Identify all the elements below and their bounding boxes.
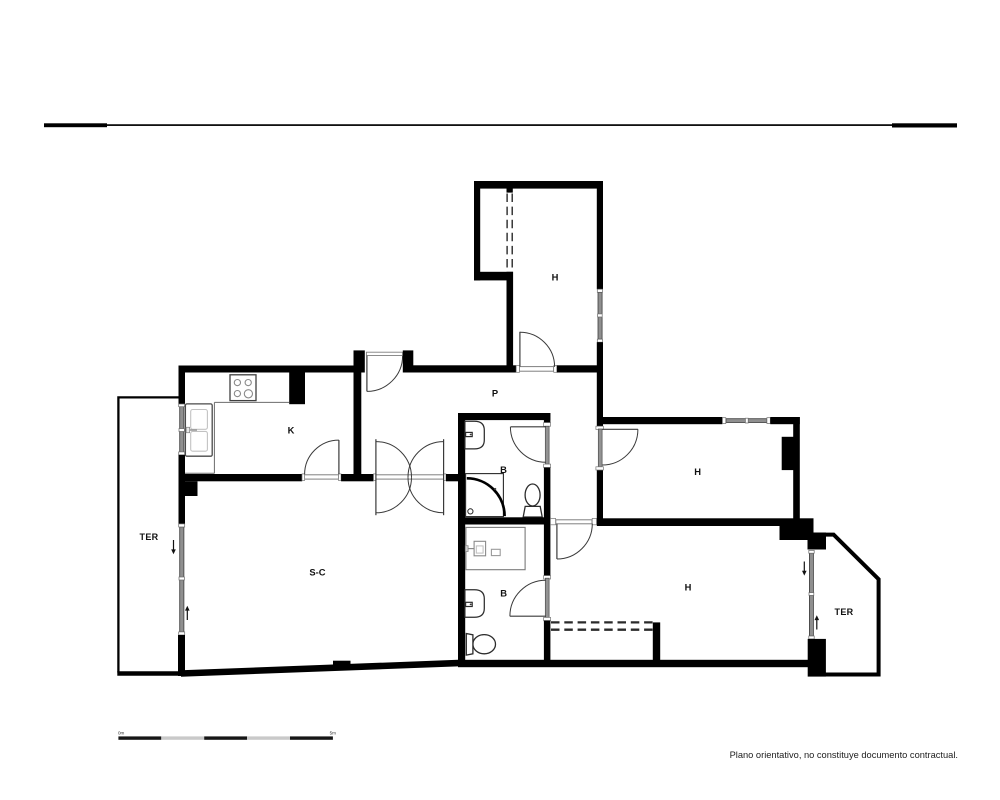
svg-text:H: H (694, 466, 701, 477)
svg-text:B: B (500, 587, 507, 598)
svg-text:P: P (492, 387, 498, 398)
svg-text:B: B (500, 464, 507, 475)
svg-text:TER: TER (835, 607, 854, 617)
svg-text:5m: 5m (330, 730, 337, 735)
svg-text:0m: 0m (118, 730, 125, 735)
svg-text:Plano orientativo, no constitu: Plano orientativo, no constituye documen… (730, 750, 958, 760)
svg-text:TER: TER (140, 532, 159, 542)
svg-text:H: H (685, 581, 692, 592)
svg-text:H: H (552, 272, 559, 283)
svg-text:S-C: S-C (309, 566, 325, 577)
svg-text:K: K (288, 424, 295, 435)
